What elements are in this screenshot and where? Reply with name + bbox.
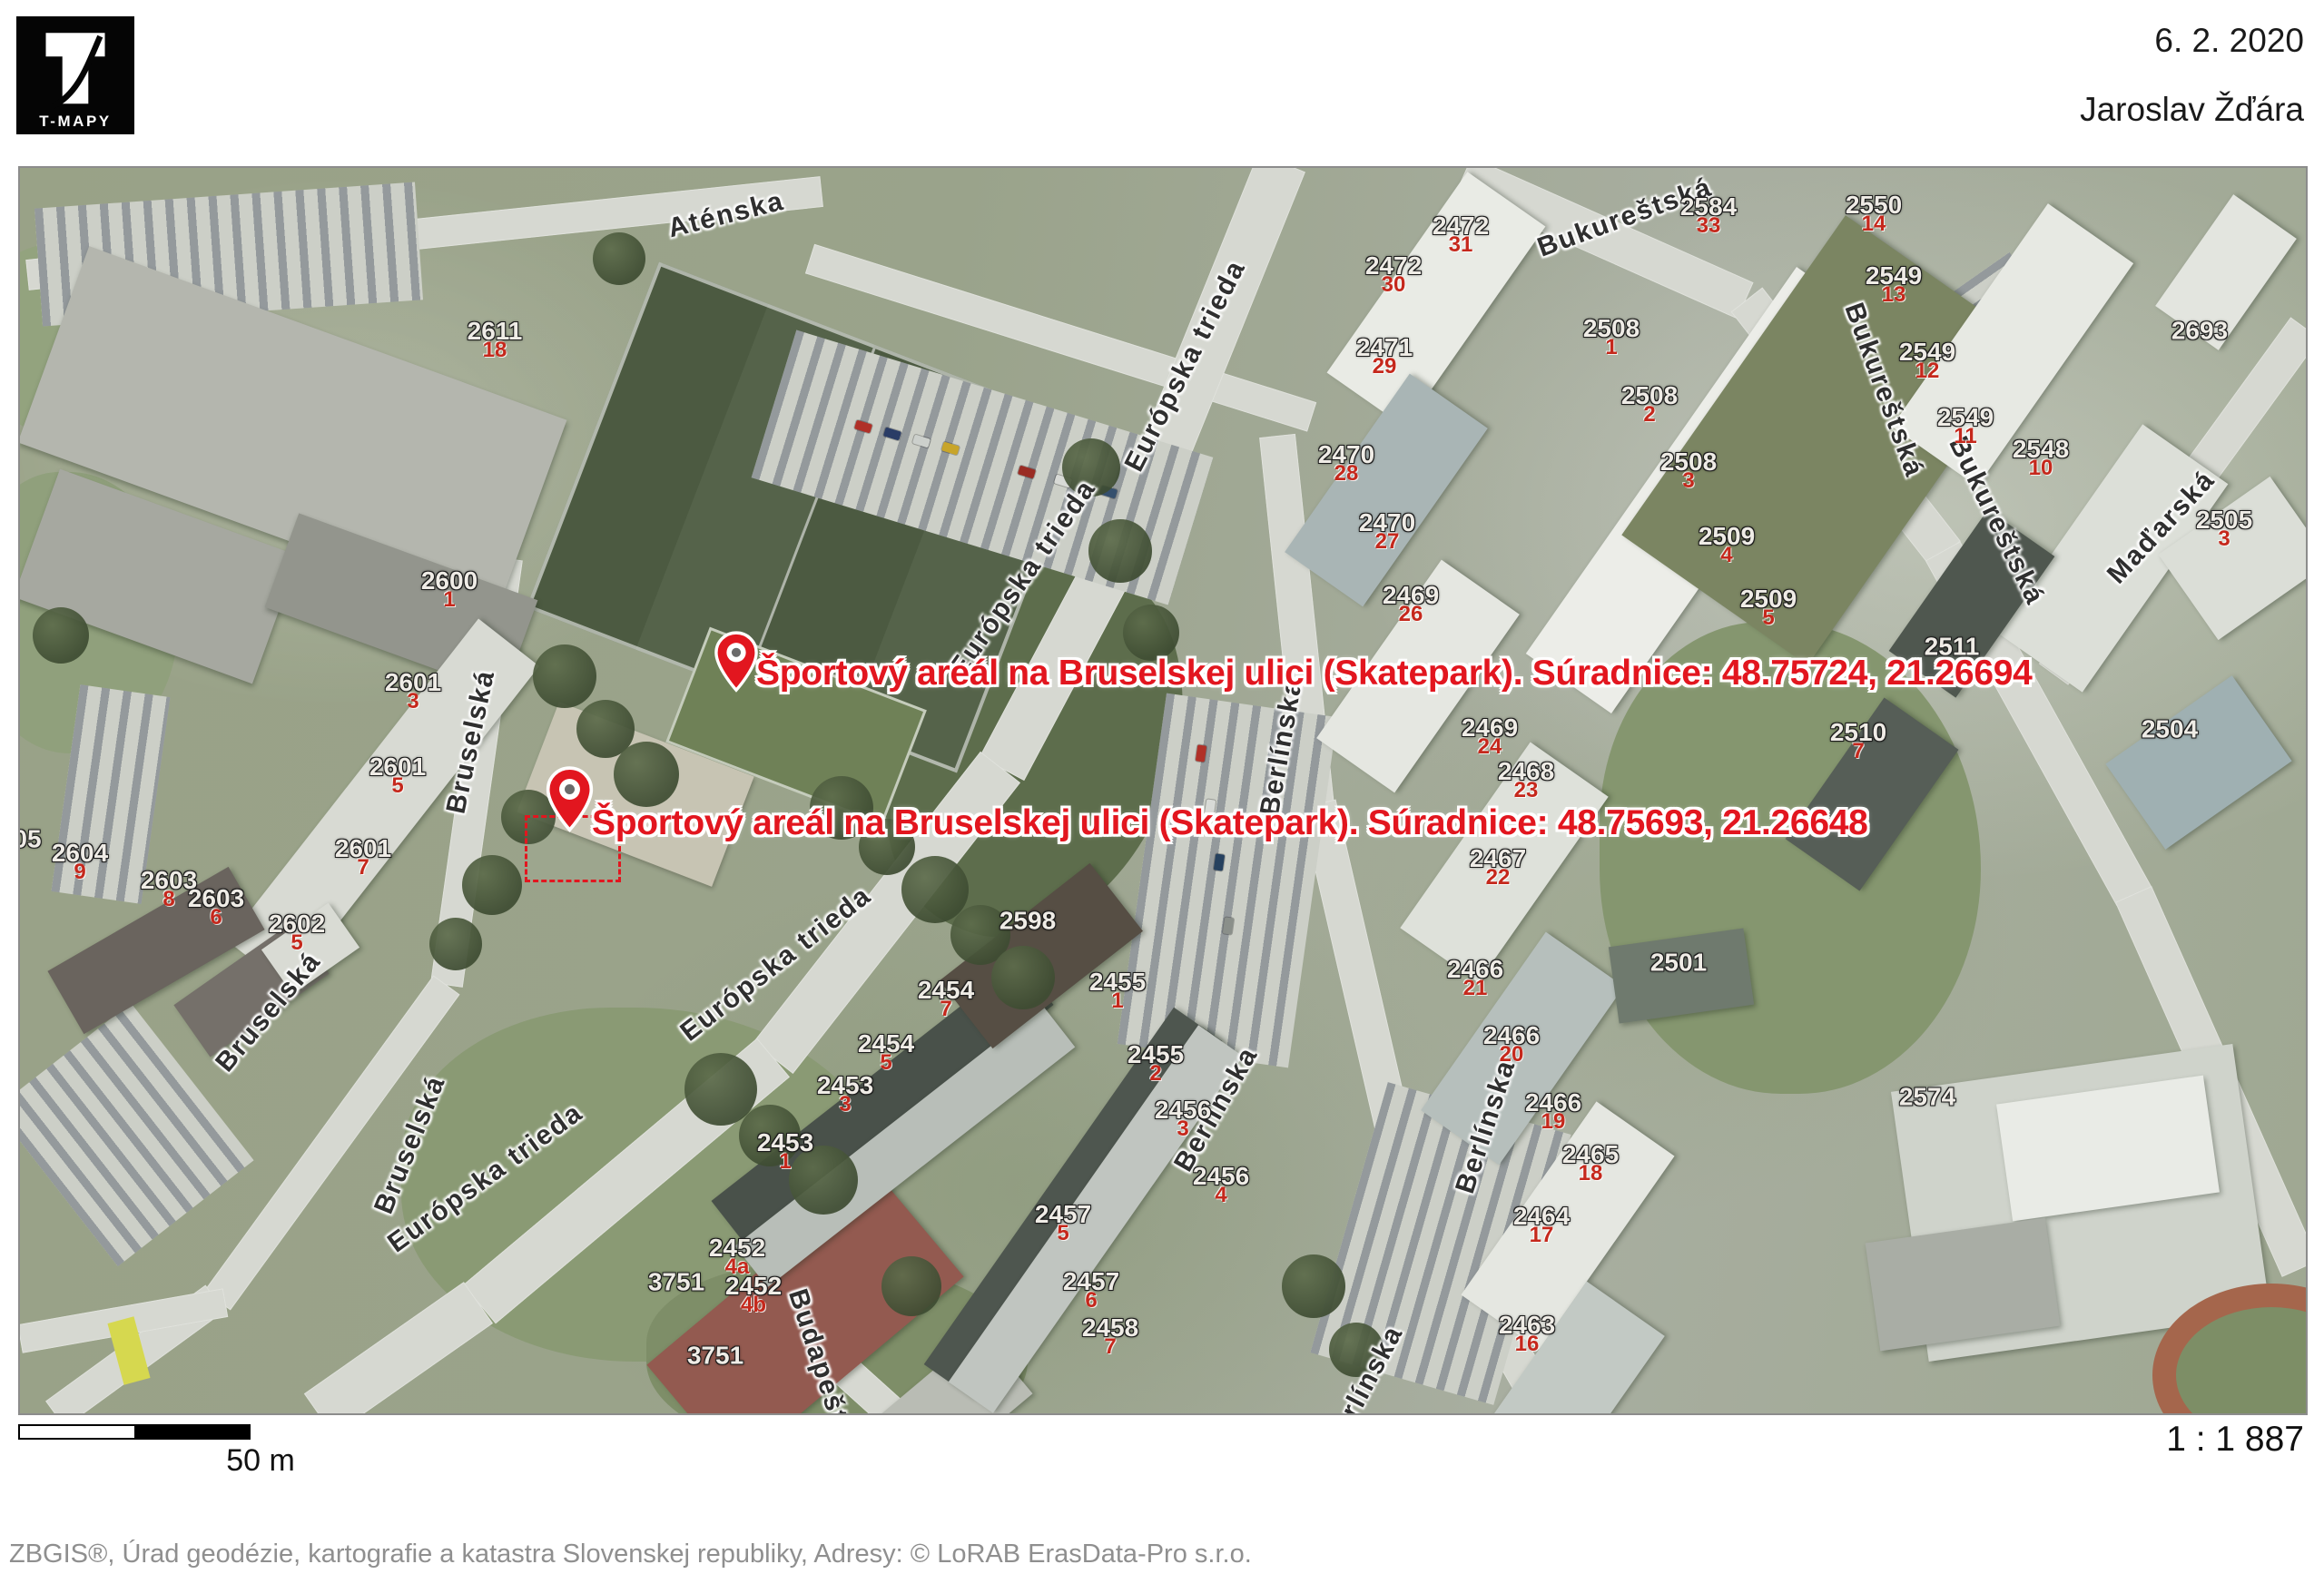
parcel-number: 25053: [2196, 508, 2252, 550]
parcel-number: 246620: [1483, 1024, 1540, 1066]
logo-wordmark: T-MAPY: [39, 113, 111, 130]
parcel-number: 246518: [1562, 1143, 1619, 1185]
parcel-number: 24575: [1035, 1203, 1091, 1244]
parcel-number: 247028: [1318, 443, 1374, 485]
parcel-number: 2598: [1000, 910, 1056, 932]
parcel-number: 05: [18, 828, 42, 851]
parcel-number: 24531: [757, 1131, 813, 1173]
parcel-number: 246924: [1462, 716, 1518, 758]
tree: [1282, 1254, 1345, 1318]
print-date: 6. 2. 2020: [2154, 22, 2304, 60]
parcel-main-number: 2574: [1899, 1086, 1955, 1108]
parcel-number: 246619: [1525, 1091, 1581, 1133]
parcel-number: 2501: [1650, 951, 1707, 974]
parcel-number: 24576: [1063, 1270, 1119, 1312]
parcel-number: 25095: [1740, 587, 1797, 629]
parcel-main-number: 3751: [687, 1344, 743, 1367]
tree: [1123, 605, 1179, 661]
map-canvas[interactable]: AténskaEurópska triedaEurópska triedaEur…: [18, 166, 2308, 1415]
parcel-number: 254810: [2013, 438, 2069, 479]
parcel-main-number: 05: [18, 828, 42, 851]
parcel-number: 246417: [1513, 1205, 1570, 1246]
parcel-number: 246926: [1383, 584, 1439, 625]
parcel-number: 24552: [1128, 1043, 1184, 1085]
parcel-number: 247231: [1433, 214, 1489, 256]
parcel-number: 25083: [1660, 450, 1717, 492]
parcel-number: 2574: [1899, 1086, 1955, 1108]
parcel-number: 246621: [1447, 958, 1503, 999]
tree: [33, 607, 89, 664]
tree: [429, 918, 482, 970]
parcel-number: 3751: [648, 1271, 704, 1294]
parcel-number: 24547: [918, 979, 974, 1020]
tree: [614, 742, 679, 807]
print-preview-page: T-MAPY 6. 2. 2020 Jaroslav Žďára: [0, 0, 2324, 1574]
tree: [991, 946, 1055, 1009]
parcel-number: 261118: [468, 320, 523, 361]
marker-label: Športový areál na Bruselskej ulici (Skat…: [756, 654, 2033, 694]
parcel-number: 25107: [1830, 721, 1886, 762]
parcel-number: 24533: [817, 1074, 873, 1116]
parcel-number: 258433: [1680, 195, 1737, 237]
map-scale-ratio: 1 : 1 887: [2166, 1420, 2304, 1460]
parcel-number: 26013: [385, 671, 441, 713]
t-mapy-logo: T-MAPY: [16, 16, 134, 134]
tree: [1088, 519, 1152, 583]
author-name: Jaroslav Žďára: [2080, 91, 2304, 129]
marker-label: Športový areál na Bruselskej ulici (Skat…: [592, 803, 1868, 843]
parcel-number: 247230: [1365, 254, 1422, 296]
parcel-number: 24587: [1082, 1316, 1138, 1358]
building-white-slab: [1327, 172, 1546, 427]
tree: [881, 1256, 941, 1316]
parcel-main-number: 3751: [648, 1271, 704, 1294]
scale-bar: [18, 1424, 251, 1440]
parcel-number: 247129: [1356, 336, 1413, 378]
parcel-number: 25082: [1621, 384, 1678, 426]
parcel-main-number: 2501: [1650, 951, 1707, 974]
parcel-number: 24524b: [725, 1274, 782, 1316]
attribution: ZBGIS®, Úrad geodézie, kartografie a kat…: [9, 1540, 1252, 1569]
road-europska-trieda: [304, 1282, 493, 1415]
parcel-number: 25081: [1583, 317, 1640, 359]
parcel-number: 246823: [1498, 760, 1554, 802]
parcel-main-number: 2598: [1000, 910, 1056, 932]
parcel-number: 24564: [1193, 1165, 1249, 1206]
tree: [533, 644, 596, 708]
parcel-number: 247027: [1359, 511, 1415, 553]
parcel-number: 2693: [2171, 320, 2228, 342]
scale-bar-label: 50 m: [226, 1443, 295, 1479]
building: [2105, 675, 2291, 850]
parcel-number: 24563: [1155, 1098, 1211, 1140]
parcel-number: 26001: [421, 569, 478, 611]
parcel-number: 26017: [335, 837, 391, 879]
parcel-number: 2504: [2142, 718, 2198, 741]
map-marker-pin[interactable]: [713, 631, 760, 693]
parcel-main-number: 2504: [2142, 718, 2198, 741]
parcel-number: 3751: [687, 1344, 743, 1367]
parcel-number: 254911: [1937, 406, 1994, 448]
parcel-number: 24545: [858, 1032, 914, 1074]
map-marker-pin-selected[interactable]: [545, 765, 595, 833]
parcel-number: 246722: [1470, 847, 1526, 889]
parcel-number: 26015: [369, 755, 426, 797]
parcel-number: 26049: [52, 841, 108, 883]
parcel-number: 255014: [1846, 193, 1902, 235]
parcel-number: 254913: [1866, 264, 1922, 306]
parcel-number: 246316: [1499, 1313, 1555, 1355]
parcel-number: 25094: [1699, 525, 1755, 566]
tree: [593, 232, 645, 285]
parcel-number: 254912: [1899, 340, 1955, 382]
parcel-number: 26036: [188, 887, 244, 929]
parcel-number: 26025: [269, 912, 325, 954]
scale-bar-black-half: [134, 1426, 249, 1438]
parcel-main-number: 2693: [2171, 320, 2228, 342]
parcel-number: 24551: [1089, 970, 1146, 1012]
tree: [462, 855, 522, 915]
